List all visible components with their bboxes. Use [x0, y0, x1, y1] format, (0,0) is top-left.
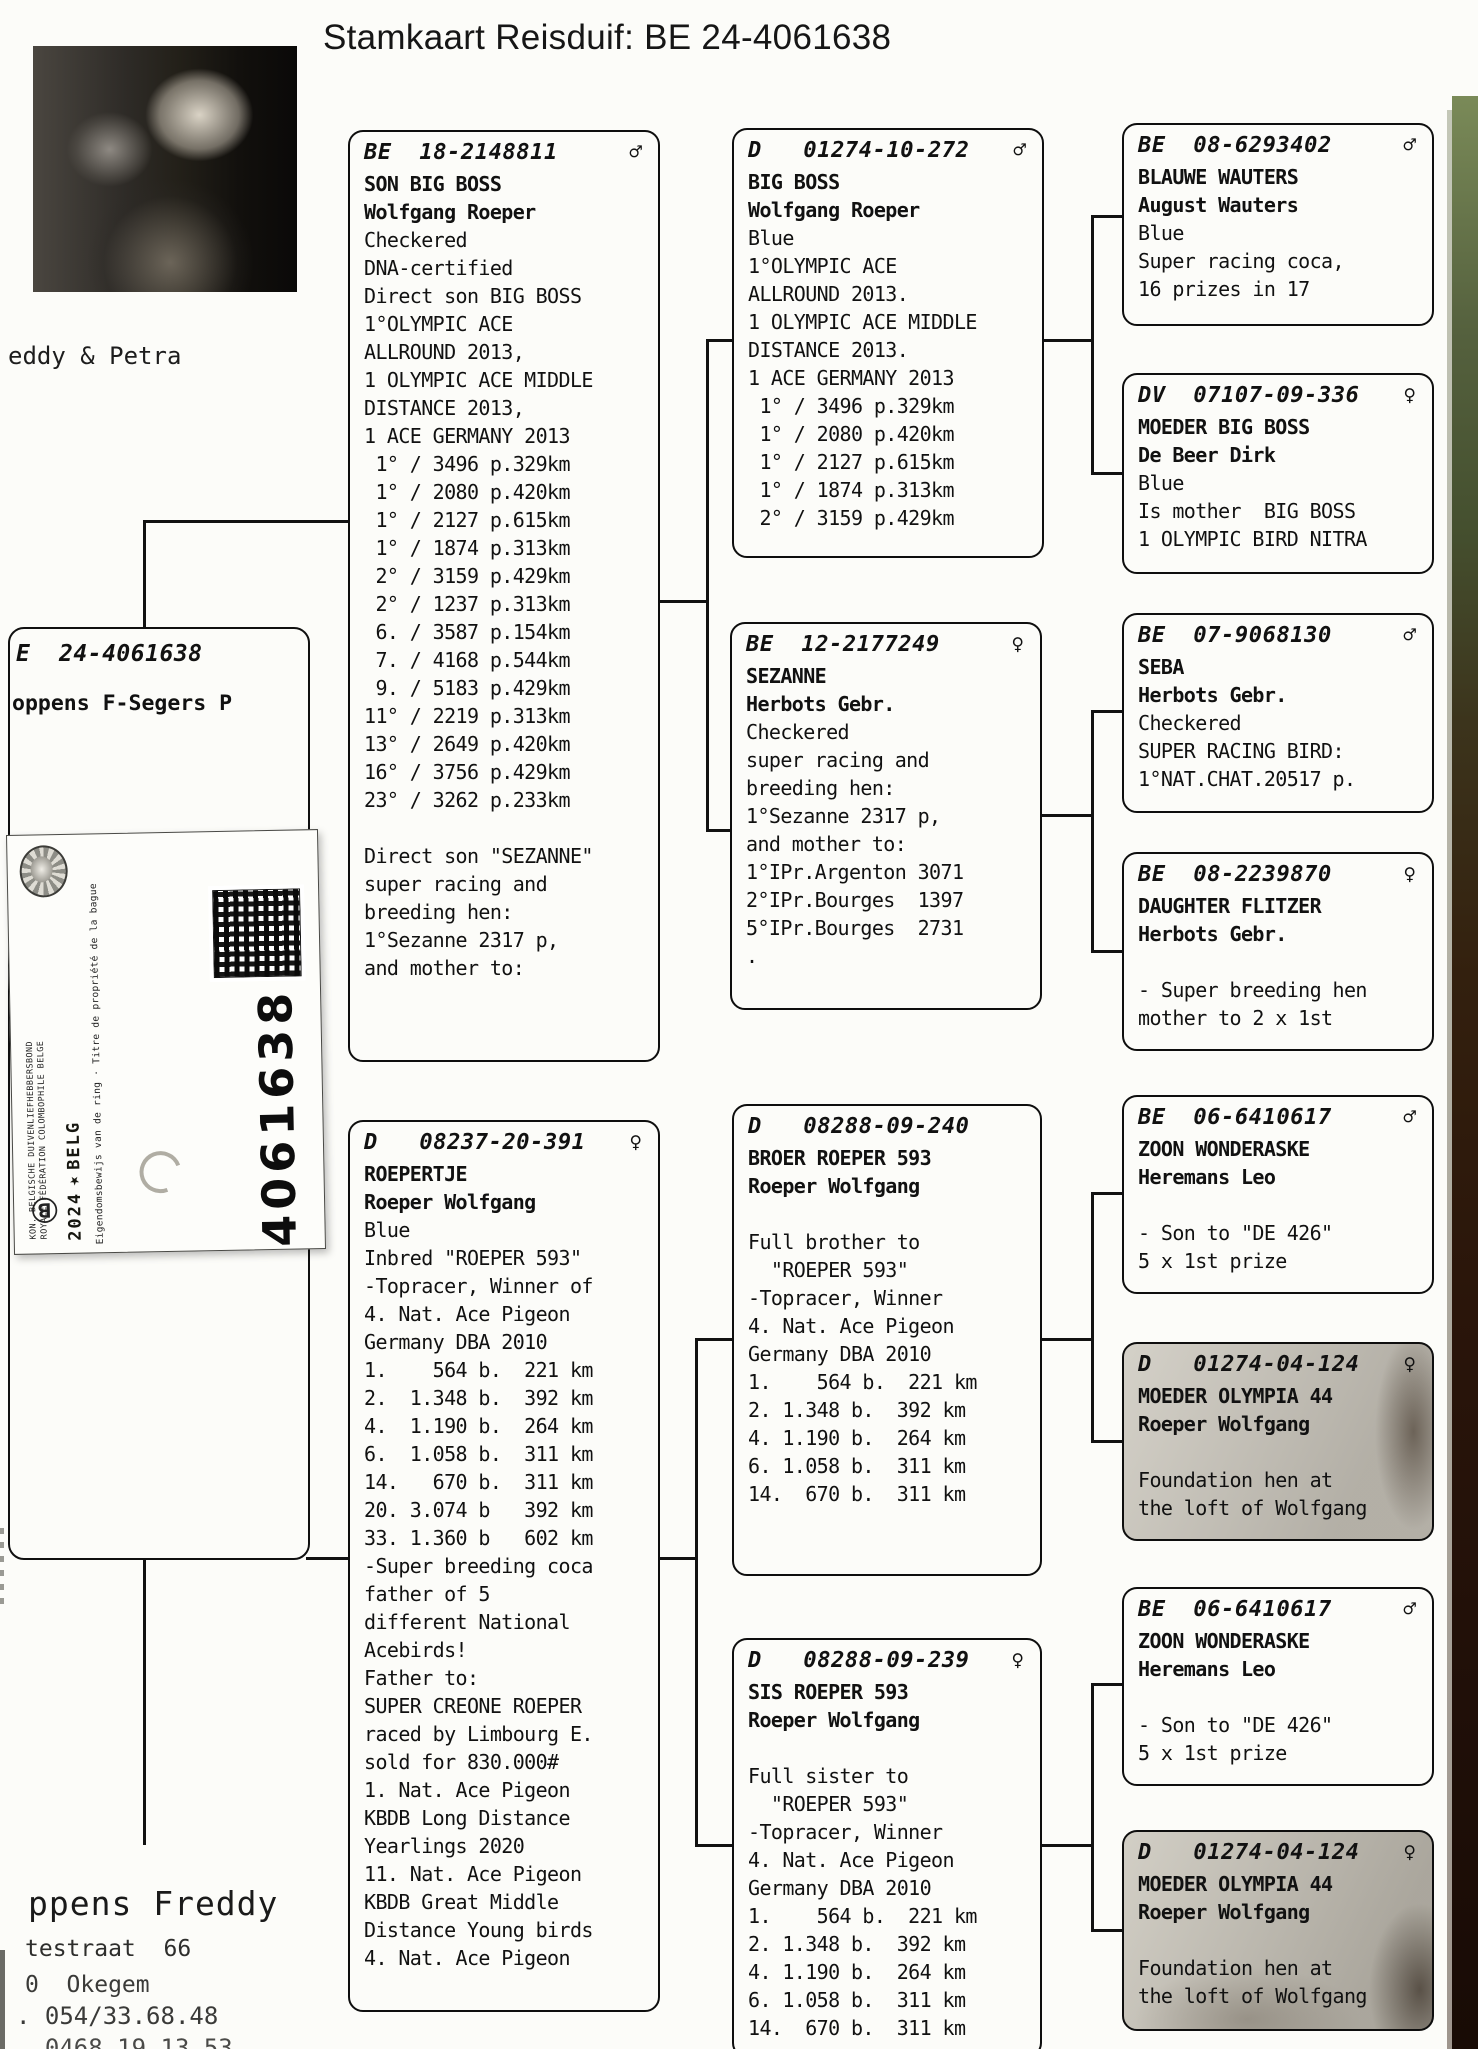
pedigree-line: Super racing coca, [1138, 247, 1432, 275]
ring-ownership-sticker: KON. BELGISCHE DUIVENLIEFHEBBERSBOND ROY… [6, 829, 326, 1255]
pedigree-line: Yearlings 2020 [364, 1832, 658, 1860]
pedigree-line: SIS ROEPER 593 [748, 1678, 1040, 1706]
pedigree-line: 6. 1.058 b. 311 km [364, 1440, 658, 1468]
female-icon: ♀ [1403, 862, 1416, 886]
pedigree-line: 1 ACE GERMANY 2013 [748, 364, 1042, 392]
ring-number: D 01274-04-124 [1138, 1352, 1360, 1377]
pedigree-line: Blue [1138, 219, 1432, 247]
pedigree-line: 1° / 3496 p.329km [748, 392, 1042, 420]
pedigree-box-dam-sire-sire: BE 06-6410617♂ZOON WONDERASKEHeremans Le… [1122, 1095, 1434, 1294]
ring-number: D 08288-09-240 [748, 1114, 970, 1139]
connector-line [1040, 339, 1093, 342]
pedigree-line [1138, 1926, 1432, 1954]
scan-mark [0, 1528, 4, 1608]
pedigree-line: -Topracer, Winner of [364, 1272, 658, 1300]
pedigree-box-sire-sire: D 01274-10-272♂BIG BOSSWolfgang RoeperBl… [732, 128, 1044, 558]
pedigree-line: Roeper Wolfgang [1138, 1410, 1432, 1438]
connector-line [1091, 1929, 1124, 1932]
pedigree-line: and mother to: [364, 954, 658, 982]
pedigree-line: 1°IPr.Argenton 3071 [746, 858, 1040, 886]
pedigree-line: Roeper Wolfgang [364, 1188, 658, 1216]
pedigree-line: ZOON WONDERASKE [1138, 1627, 1432, 1655]
pedigree-line: Germany DBA 2010 [748, 1340, 1040, 1368]
pedigree-line: 6. / 3587 p.154km [364, 618, 658, 646]
pedigree-line: Checkered [364, 226, 658, 254]
pedigree-line: father of 5 [364, 1580, 658, 1608]
pedigree-line: -Super breeding coca [364, 1552, 658, 1580]
pedigree-line: 1. 564 b. 221 km [748, 1368, 1040, 1396]
pedigree-line: 1° / 1874 p.313km [364, 534, 658, 562]
pedigree-line: MOEDER OLYMPIA 44 [1138, 1382, 1432, 1410]
pedigree-line: Germany DBA 2010 [748, 1874, 1040, 1902]
pedigree-line: 5 x 1st prize [1138, 1247, 1432, 1275]
pedigree-line: Heremans Leo [1138, 1655, 1432, 1683]
pedigree-line: SON BIG BOSS [364, 170, 658, 198]
pedigree-line: SEBA [1138, 653, 1432, 681]
connector-line [1091, 1440, 1124, 1443]
connector-line [1091, 215, 1094, 475]
subject-ring-number: E 24-4061638 [16, 641, 203, 667]
pedigree-line [748, 1200, 1040, 1228]
pedigree-line: - Son to "DE 426" [1138, 1219, 1432, 1247]
pedigree-line: 1°Sezanne 2317 p, [746, 802, 1040, 830]
pedigree-line: 1. 564 b. 221 km [364, 1356, 658, 1384]
pedigree-line: 1° / 2127 p.615km [748, 448, 1042, 476]
pedigree-line: 14. 670 b. 311 km [748, 1480, 1040, 1508]
ring-header: BE 06-6410617♂ [1138, 1597, 1432, 1627]
pedigree-line: -Topracer, Winner [748, 1284, 1040, 1312]
ring-number: D 08288-09-239 [748, 1648, 970, 1673]
male-icon: ♂ [1403, 1105, 1416, 1129]
female-icon: ♀ [1403, 1352, 1416, 1376]
connector-line [1091, 472, 1124, 475]
connector-line [695, 1338, 734, 1341]
pedigree-line: 14. 670 b. 311 km [748, 2014, 1040, 2042]
pedigree-line: 4. 1.190 b. 264 km [364, 1412, 658, 1440]
pedigree-line: "ROEPER 593" [748, 1256, 1040, 1284]
pedigree-line: -Topracer, Winner [748, 1818, 1040, 1846]
connector-line [1091, 1683, 1094, 1932]
pedigree-line: 1 OLYMPIC ACE MIDDLE [748, 308, 1042, 336]
pedigree-line: ROEPERTJE [364, 1160, 658, 1188]
connector-line [1091, 710, 1124, 713]
pedigree-line: 2. 1.348 b. 392 km [364, 1384, 658, 1412]
pedigree-line: raced by Limbourg E. [364, 1720, 658, 1748]
subject-owner-name: oppens F-Segers P [12, 691, 232, 716]
pedigree-line: Is mother BIG BOSS [1138, 497, 1432, 525]
ownership-title-text: Eigendomsbewijs van de ring · Titre de p… [87, 844, 115, 1244]
connector-line [706, 339, 734, 342]
connector-line [695, 1338, 698, 1846]
pedigree-line [1138, 948, 1432, 976]
pedigree-box-dam-dam-sire: BE 06-6410617♂ZOON WONDERASKEHeremans Le… [1122, 1587, 1434, 1786]
owner-name: ppens Freddy [28, 1884, 278, 1923]
connector-line [1038, 1338, 1093, 1341]
pedigree-box-dam-dam-dam: D 01274-04-124♀MOEDER OLYMPIA 44Roeper W… [1122, 1830, 1434, 2031]
pedigree-line: Heremans Leo [1138, 1163, 1432, 1191]
pedigree-line: Direct son "SEZANNE" [364, 842, 658, 870]
pedigree-line: 4. 1.190 b. 264 km [748, 1958, 1040, 1986]
pedigree-line: ZOON WONDERASKE [1138, 1135, 1432, 1163]
pedigree-line: BROER ROEPER 593 [748, 1144, 1040, 1172]
pedigree-line: the loft of Wolfgang [1138, 1982, 1432, 2010]
pedigree-line: 33. 1.360 b 602 km [364, 1524, 658, 1552]
pedigree-box-sire-sire-dam: DV 07107-09-336♀MOEDER BIG BOSSDe Beer D… [1122, 373, 1434, 574]
ring-header: D 01274-04-124♀ [1138, 1352, 1432, 1382]
pedigree-line: super racing and [364, 870, 658, 898]
pedigree-line: 1 OLYMPIC ACE MIDDLE [364, 366, 658, 394]
pedigree-line: 1° / 2080 p.420km [748, 420, 1042, 448]
pedigree-line: 1°NAT.CHAT.20517 p. [1138, 765, 1432, 793]
pedigree-line [748, 1734, 1040, 1762]
pedigree-card-page: Stamkaart Reisduif: BE 24-4061638 eddy &… [0, 0, 1478, 2049]
pedigree-line: DAUGHTER FLITZER [1138, 892, 1432, 920]
ring-number-large: 4061638 [238, 1008, 317, 1247]
pedigree-line: DISTANCE 2013, [364, 394, 658, 422]
pedigree-line: 13° / 2649 p.420km [364, 730, 658, 758]
owner-street: testraat 66 [25, 1936, 191, 1962]
pedigree-line: Herbots Gebr. [1138, 920, 1432, 948]
pedigree-line: Herbots Gebr. [1138, 681, 1432, 709]
ring-number: BE 06-6410617 [1138, 1597, 1332, 1622]
pedigree-line: 4. Nat. Ace Pigeon [364, 1944, 658, 1972]
pedigree-line: BIG BOSS [748, 168, 1042, 196]
connector-line [1091, 1683, 1124, 1686]
pedigree-line: super racing and [746, 746, 1040, 774]
pedigree-line: Roeper Wolfgang [1138, 1898, 1432, 1926]
pedigree-line: 16° / 3756 p.429km [364, 758, 658, 786]
pedigree-line: SEZANNE [746, 662, 1040, 690]
connector-line [143, 520, 146, 629]
ring-header: BE 06-6410617♂ [1138, 1105, 1432, 1135]
hole-punch [133, 1144, 188, 1199]
pedigree-line: 20. 3.074 b 392 km [364, 1496, 658, 1524]
pedigree-line: 2° / 3159 p.429km [748, 504, 1042, 532]
female-icon: ♀ [1011, 1648, 1024, 1672]
pedigree-line: Inbred "ROEPER 593" [364, 1244, 658, 1272]
pedigree-box-dam-sire: D 08288-09-240BROER ROEPER 593Roeper Wol… [732, 1104, 1042, 1576]
pedigree-line: DISTANCE 2013. [748, 336, 1042, 364]
ring-number: BE 07-9068130 [1138, 623, 1332, 648]
pedigree-line: 9. / 5183 p.429km [364, 674, 658, 702]
pedigree-line: Full brother to [748, 1228, 1040, 1256]
pedigree-line: 11° / 2219 p.313km [364, 702, 658, 730]
connector-line [1091, 1192, 1124, 1195]
pedigree-line: 1° / 3496 p.329km [364, 450, 658, 478]
female-icon: ♀ [1403, 1840, 1416, 1864]
ring-header: DV 07107-09-336♀ [1138, 383, 1432, 413]
pedigree-line: SUPER RACING BIRD: [1138, 737, 1432, 765]
pedigree-line: MOEDER BIG BOSS [1138, 413, 1432, 441]
pedigree-line: ALLROUND 2013. [748, 280, 1042, 308]
pedigree-line: 5°IPr.Bourges 2731 [746, 914, 1040, 942]
pedigree-line [1138, 1438, 1432, 1466]
pedigree-box-dam-dam: D 08288-09-239♀SIS ROEPER 593Roeper Wolf… [732, 1638, 1042, 2049]
qr-code [212, 888, 302, 978]
male-icon: ♂ [1403, 1597, 1416, 1621]
connector-line [656, 600, 708, 603]
ring-header: BE 12-2177249♀ [746, 632, 1040, 662]
pedigree-line: Full sister to [748, 1762, 1040, 1790]
pedigree-box-sire-sire-sire: BE 08-6293402♂BLAUWE WAUTERSAugust Waute… [1122, 123, 1434, 326]
pedigree-line: 1°OLYMPIC ACE [748, 252, 1042, 280]
pedigree-line: 23° / 3262 p.233km [364, 786, 658, 814]
male-icon: ♂ [1013, 138, 1026, 162]
ring-number: BE 12-2177249 [746, 632, 940, 657]
connector-line [1038, 1844, 1093, 1847]
ring-number: BE 08-2239870 [1138, 862, 1332, 887]
pedigree-line: 1 OLYMPIC BIRD NITRA [1138, 525, 1432, 553]
pedigree-line: MOEDER OLYMPIA 44 [1138, 1870, 1432, 1898]
connector-line [706, 829, 732, 832]
ring-header: BE 08-2239870♀ [1138, 862, 1432, 892]
pedigree-line: De Beer Dirk [1138, 441, 1432, 469]
pedigree-line [364, 814, 658, 842]
female-icon: ♀ [1011, 632, 1024, 656]
pedigree-line: SUPER CREONE ROEPER [364, 1692, 658, 1720]
pedigree-line: Herbots Gebr. [746, 690, 1040, 718]
pedigree-line: 14. 670 b. 311 km [364, 1468, 658, 1496]
male-icon: ♂ [1403, 623, 1416, 647]
pedigree-line: 4. 1.190 b. 264 km [748, 1424, 1040, 1452]
pedigree-line: mother to 2 x 1st [1138, 1004, 1432, 1032]
pedigree-line: Roeper Wolfgang [748, 1706, 1040, 1734]
owner-phone-2: . 0468 19.13.53 [16, 2034, 233, 2049]
pedigree-line: 1. Nat. Ace Pigeon [364, 1776, 658, 1804]
pedigree-line: 4. Nat. Ace Pigeon [364, 1300, 658, 1328]
pedigree-line: 1°OLYMPIC ACE [364, 310, 658, 338]
owner-city: 0 Okegem [25, 1972, 150, 1998]
connector-line [143, 1558, 146, 1845]
pedigree-line: Checkered [746, 718, 1040, 746]
connector-line [143, 520, 348, 523]
ring-number: D 01274-10-272 [748, 138, 970, 163]
ring-number: BE 18-2148811 [364, 140, 558, 165]
pedigree-line: Blue [1138, 469, 1432, 497]
pedigree-line: BLAUWE WAUTERS [1138, 163, 1432, 191]
pedigree-line: 6. 1.058 b. 311 km [748, 1986, 1040, 2014]
ring-number: DV 07107-09-336 [1138, 383, 1360, 408]
pedigree-line: 1° / 2127 p.615km [364, 506, 658, 534]
connector-line [706, 339, 709, 832]
pedigree-line: 1°Sezanne 2317 p, [364, 926, 658, 954]
connector-line [1038, 814, 1093, 817]
pedigree-line: different National [364, 1608, 658, 1636]
connector-line [306, 1557, 348, 1560]
photo-caption: eddy & Petra [8, 342, 181, 370]
scan-mark [0, 1950, 5, 2049]
pedigree-line: 7. / 4168 p.544km [364, 646, 658, 674]
ring-header: D 01274-10-272♂ [748, 138, 1042, 168]
female-icon: ♀ [1403, 383, 1416, 407]
pedigree-line: - Super breeding hen [1138, 976, 1432, 1004]
pedigree-line: 1 ACE GERMANY 2013 [364, 422, 658, 450]
pedigree-box-sire-dam-dam: BE 08-2239870♀DAUGHTER FLITZERHerbots Ge… [1122, 852, 1434, 1051]
pedigree-line: sold for 830.000# [364, 1748, 658, 1776]
pedigree-line: 2. 1.348 b. 392 km [748, 1930, 1040, 1958]
pedigree-line [1138, 1683, 1432, 1711]
pedigree-line: DNA-certified [364, 254, 658, 282]
connector-line [1091, 950, 1124, 953]
pedigree-line: Wolfgang Roeper [364, 198, 658, 226]
pedigree-line: August Wauters [1138, 191, 1432, 219]
female-icon: ♀ [629, 1130, 642, 1154]
pedigree-line: 4. Nat. Ace Pigeon [748, 1846, 1040, 1874]
pedigree-line: - Son to "DE 426" [1138, 1711, 1432, 1739]
pedigree-line: Direct son BIG BOSS [364, 282, 658, 310]
ring-number: D 08237-20-391 [364, 1130, 586, 1155]
pedigree-line: . [746, 942, 1040, 970]
scan-edge-border [1452, 96, 1478, 2049]
ring-number: BE 08-6293402 [1138, 133, 1332, 158]
pedigree-line: 5 x 1st prize [1138, 1739, 1432, 1767]
pedigree-line: Blue [364, 1216, 658, 1244]
pedigree-line: breeding hen: [364, 898, 658, 926]
pedigree-box-sire-dam: BE 12-2177249♀SEZANNEHerbots Gebr.Checke… [730, 622, 1042, 1010]
pedigree-line: Foundation hen at [1138, 1466, 1432, 1494]
pedigree-line: "ROEPER 593" [748, 1790, 1040, 1818]
ring-header: D 08237-20-391♀ [364, 1130, 658, 1160]
pedigree-line: ALLROUND 2013, [364, 338, 658, 366]
pedigree-line: Roeper Wolfgang [748, 1172, 1040, 1200]
pedigree-line: Germany DBA 2010 [364, 1328, 658, 1356]
owner-phone-1: . 054/33.68.48 [16, 2002, 218, 2030]
pedigree-line: and mother to: [746, 830, 1040, 858]
page-title: Stamkaart Reisduif: BE 24-4061638 [323, 18, 1223, 58]
ring-header: D 08288-09-240 [748, 1114, 1040, 1144]
pedigree-line: 1° / 2080 p.420km [364, 478, 658, 506]
connector-line [1091, 710, 1094, 953]
connector-line [695, 1844, 734, 1847]
pedigree-line: Acebirds! [364, 1636, 658, 1664]
pedigree-line: 2°IPr.Bourges 1397 [746, 886, 1040, 914]
pedigree-line: 1° / 1874 p.313km [748, 476, 1042, 504]
pedigree-line: 2° / 3159 p.429km [364, 562, 658, 590]
pedigree-line: Checkered [1138, 709, 1432, 737]
male-icon: ♂ [1403, 133, 1416, 157]
connector-line [656, 1557, 697, 1560]
ring-header: BE 08-6293402♂ [1138, 133, 1432, 163]
pedigree-line: KBDB Great Middle [364, 1888, 658, 1916]
pedigree-box-sire-dam-sire: BE 07-9068130♂SEBAHerbots Gebr.Checkered… [1122, 613, 1434, 813]
pedigree-box-dam: D 08237-20-391♀ROEPERTJERoeper WolfgangB… [348, 1120, 660, 2012]
pedigree-line [1138, 1191, 1432, 1219]
pedigree-line: 11. Nat. Ace Pigeon [364, 1860, 658, 1888]
pedigree-line: Wolfgang Roeper [748, 196, 1042, 224]
male-icon: ♂ [629, 140, 642, 164]
ring-header: D 08288-09-239♀ [748, 1648, 1040, 1678]
pedigree-line: Father to: [364, 1664, 658, 1692]
pedigree-box-dam-sire-dam: D 01274-04-124♀MOEDER OLYMPIA 44Roeper W… [1122, 1342, 1434, 1541]
owners-photo [33, 46, 297, 292]
ring-header: BE 18-2148811♂ [364, 140, 658, 170]
pedigree-line: 1. 564 b. 221 km [748, 1902, 1040, 1930]
pedigree-line: 2. 1.348 b. 392 km [748, 1396, 1040, 1424]
pedigree-line: Blue [748, 224, 1042, 252]
pedigree-line: 4. Nat. Ace Pigeon [748, 1312, 1040, 1340]
pedigree-line: Foundation hen at [1138, 1954, 1432, 1982]
belgium-b-mark: Ⓑ [27, 1153, 65, 1224]
ring-header: D 01274-04-124♀ [1138, 1840, 1432, 1870]
connector-line [1091, 1192, 1094, 1443]
pedigree-line: Distance Young birds [364, 1916, 658, 1944]
connector-line [1091, 215, 1124, 218]
ring-number: BE 06-6410617 [1138, 1105, 1332, 1130]
pedigree-line: breeding hen: [746, 774, 1040, 802]
pedigree-line: 2° / 1237 p.313km [364, 590, 658, 618]
ring-number: D 01274-04-124 [1138, 1840, 1360, 1865]
pedigree-line: 6. 1.058 b. 311 km [748, 1452, 1040, 1480]
pedigree-line: 16 prizes in 17 [1138, 275, 1432, 303]
pedigree-line: KBDB Long Distance [364, 1804, 658, 1832]
pedigree-line: the loft of Wolfgang [1138, 1494, 1432, 1522]
ring-header: BE 07-9068130♂ [1138, 623, 1432, 653]
pedigree-box-sire: BE 18-2148811♂SON BIG BOSSWolfgang Roepe… [348, 130, 660, 1062]
federation-logo-icon: ★ [64, 1170, 84, 1192]
